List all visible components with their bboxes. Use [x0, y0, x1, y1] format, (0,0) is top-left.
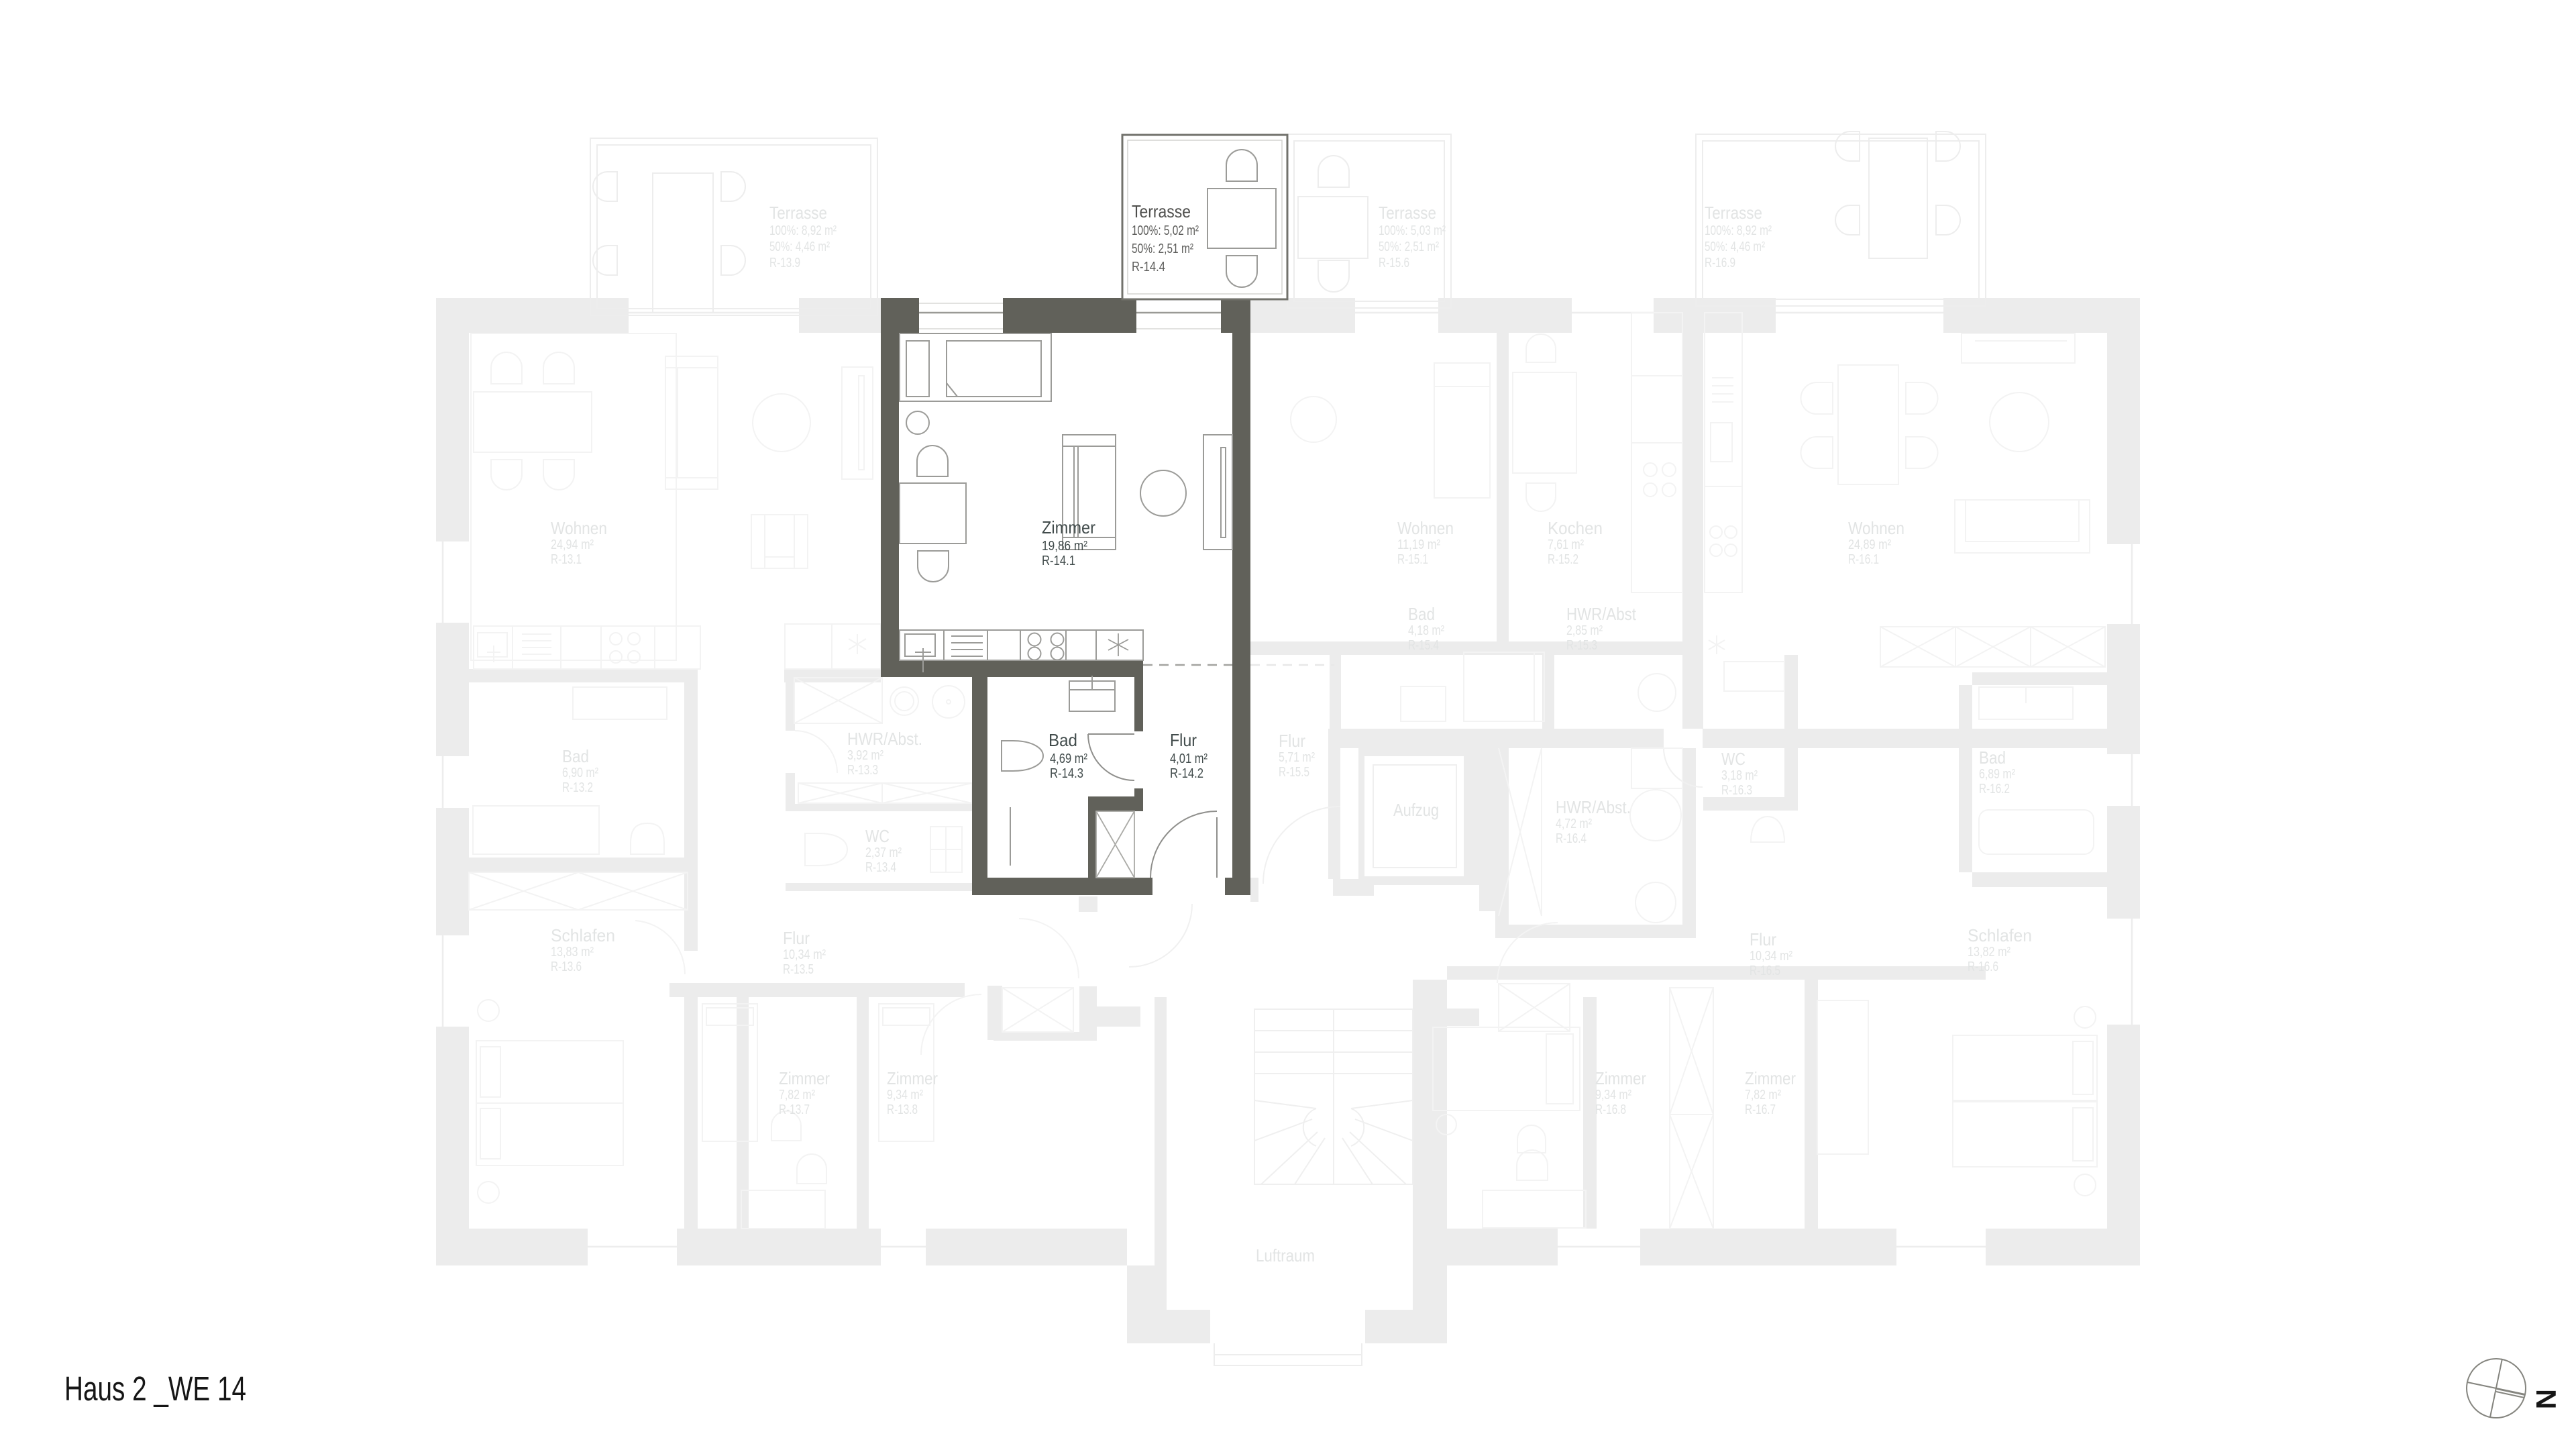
svg-text:Schlafen: Schlafen: [551, 925, 615, 945]
svg-text:Luftraum: Luftraum: [1256, 1245, 1315, 1265]
svg-text:24,94 m²: 24,94 m²: [551, 537, 594, 552]
svg-text:6,89 m²: 6,89 m²: [1979, 767, 2015, 782]
svg-text:Haus 2 _WE 14: Haus 2 _WE 14: [64, 1369, 246, 1408]
svg-text:Zimmer: Zimmer: [1745, 1068, 1796, 1088]
svg-text:R-16.2: R-16.2: [1979, 782, 2010, 796]
svg-text:50%: 2,51 m²: 50%: 2,51 m²: [1132, 242, 1193, 256]
svg-text:R-14.4: R-14.4: [1132, 260, 1165, 274]
svg-text:Flur: Flur: [1279, 731, 1305, 751]
svg-text:WC: WC: [865, 826, 890, 846]
svg-text:Bad: Bad: [1049, 730, 1077, 750]
svg-text:R-13.2: R-13.2: [562, 780, 593, 795]
svg-text:HWR/Abst.: HWR/Abst.: [847, 729, 922, 749]
svg-text:10,34 m²: 10,34 m²: [1750, 949, 1792, 964]
svg-text:R-13.7: R-13.7: [779, 1102, 810, 1117]
svg-text:100%: 5,03 m²: 100%: 5,03 m²: [1379, 223, 1446, 238]
svg-text:Zimmer: Zimmer: [779, 1068, 830, 1088]
svg-text:5,71 m²: 5,71 m²: [1279, 750, 1315, 765]
svg-text:R-13.3: R-13.3: [847, 763, 878, 778]
svg-text:R-15.6: R-15.6: [1379, 256, 1409, 270]
svg-text:WC: WC: [1721, 749, 1746, 769]
svg-text:4,69 m²: 4,69 m²: [1050, 752, 1087, 766]
svg-text:3,92 m²: 3,92 m²: [847, 748, 883, 763]
svg-text:24,89 m²: 24,89 m²: [1848, 537, 1891, 552]
svg-text:R-14.1: R-14.1: [1042, 554, 1075, 568]
svg-text:50%: 2,51 m²: 50%: 2,51 m²: [1379, 240, 1439, 254]
svg-text:10,34 m²: 10,34 m²: [783, 947, 826, 962]
svg-text:100%: 8,92 m²: 100%: 8,92 m²: [1705, 223, 1772, 238]
svg-text:Terrasse: Terrasse: [1132, 201, 1191, 221]
svg-text:7,61 m²: 7,61 m²: [1548, 537, 1584, 552]
svg-text:R-16.1: R-16.1: [1848, 552, 1879, 567]
svg-text:Kochen: Kochen: [1548, 518, 1603, 538]
svg-text:13,83 m²: 13,83 m²: [551, 945, 594, 960]
svg-text:R-15.3: R-15.3: [1566, 638, 1597, 653]
svg-text:R-15.2: R-15.2: [1548, 552, 1578, 567]
svg-text:R-13.4: R-13.4: [865, 860, 896, 875]
svg-text:R-14.2: R-14.2: [1170, 766, 1203, 781]
svg-text:50%: 4,46 m²: 50%: 4,46 m²: [1705, 240, 1765, 254]
svg-text:R-15.1: R-15.1: [1397, 552, 1428, 567]
svg-text:R-16.6: R-16.6: [1968, 960, 1998, 974]
svg-text:13,82 m²: 13,82 m²: [1968, 945, 2010, 960]
svg-text:R-13.9: R-13.9: [769, 256, 800, 270]
svg-text:Flur: Flur: [783, 928, 810, 948]
svg-text:4,01 m²: 4,01 m²: [1170, 752, 1207, 766]
svg-text:R-16.5: R-16.5: [1750, 964, 1780, 978]
svg-text:Bad: Bad: [562, 746, 589, 766]
svg-text:9,34 m²: 9,34 m²: [1595, 1088, 1631, 1102]
svg-text:19,86 m²: 19,86 m²: [1042, 539, 1087, 554]
svg-text:R-13.5: R-13.5: [783, 962, 814, 977]
svg-text:4,72 m²: 4,72 m²: [1556, 817, 1592, 831]
svg-text:HWR/Abst.: HWR/Abst.: [1556, 797, 1631, 817]
svg-text:50%: 4,46 m²: 50%: 4,46 m²: [769, 240, 830, 254]
svg-text:R-16.9: R-16.9: [1705, 256, 1735, 270]
svg-text:N: N: [2530, 1389, 2562, 1409]
svg-text:2,37 m²: 2,37 m²: [865, 845, 902, 860]
svg-text:Zimmer: Zimmer: [1042, 517, 1095, 537]
svg-text:Flur: Flur: [1750, 929, 1776, 949]
svg-text:Terrasse: Terrasse: [1379, 203, 1436, 223]
svg-text:R-16.8: R-16.8: [1595, 1102, 1626, 1117]
svg-text:Wohnen: Wohnen: [551, 518, 607, 538]
svg-text:Schlafen: Schlafen: [1968, 925, 2032, 945]
svg-text:Bad: Bad: [1408, 604, 1435, 624]
svg-text:Wohnen: Wohnen: [1848, 518, 1904, 538]
svg-text:R-16.3: R-16.3: [1721, 783, 1752, 798]
svg-text:R-14.3: R-14.3: [1050, 766, 1083, 781]
svg-text:7,82 m²: 7,82 m²: [1745, 1088, 1781, 1102]
svg-text:Terrasse: Terrasse: [1705, 203, 1762, 223]
svg-text:3,18 m²: 3,18 m²: [1721, 768, 1758, 783]
svg-text:Zimmer: Zimmer: [887, 1068, 938, 1088]
svg-text:Zimmer: Zimmer: [1595, 1068, 1646, 1088]
svg-text:R-13.8: R-13.8: [887, 1102, 918, 1117]
svg-text:6,90 m²: 6,90 m²: [562, 766, 598, 780]
svg-text:R-16.7: R-16.7: [1745, 1102, 1776, 1117]
svg-text:9,34 m²: 9,34 m²: [887, 1088, 923, 1102]
svg-text:Wohnen: Wohnen: [1397, 518, 1454, 538]
svg-text:R-15.5: R-15.5: [1279, 765, 1309, 780]
svg-text:R-13.1: R-13.1: [551, 552, 582, 567]
svg-text:R-16.4: R-16.4: [1556, 831, 1587, 846]
svg-text:7,82 m²: 7,82 m²: [779, 1088, 815, 1102]
svg-text:R-15.4: R-15.4: [1408, 638, 1439, 653]
svg-text:HWR/Abst: HWR/Abst: [1566, 604, 1637, 624]
svg-text:100%: 5,02 m²: 100%: 5,02 m²: [1132, 223, 1199, 238]
svg-text:Flur: Flur: [1170, 730, 1197, 750]
svg-text:11,19 m²: 11,19 m²: [1397, 537, 1440, 552]
svg-text:Terrasse: Terrasse: [769, 203, 827, 223]
svg-text:Bad: Bad: [1979, 747, 2006, 768]
svg-text:100%: 8,92 m²: 100%: 8,92 m²: [769, 223, 837, 238]
svg-text:4,18 m²: 4,18 m²: [1408, 623, 1444, 638]
svg-text:2,85 m²: 2,85 m²: [1566, 623, 1603, 638]
svg-text:Aufzug: Aufzug: [1393, 800, 1439, 820]
svg-text:R-13.6: R-13.6: [551, 960, 582, 974]
